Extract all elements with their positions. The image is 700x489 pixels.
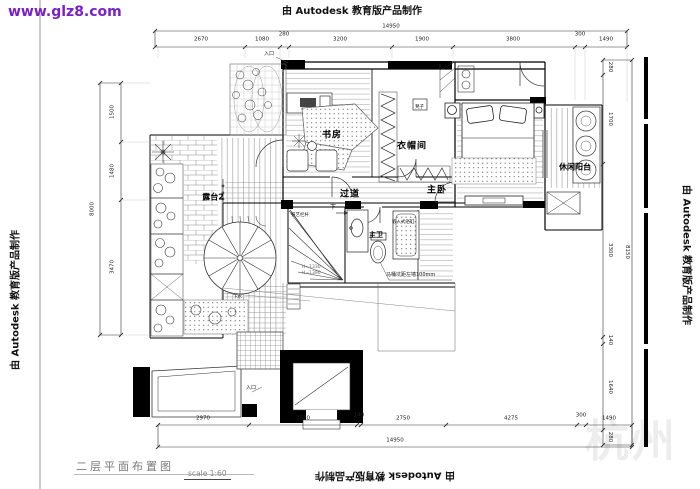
- annotation-drain: 下水: [233, 296, 242, 301]
- autodesk-watermark-left: 由 Autodesk 教育版产品制作: [7, 230, 22, 370]
- annotation-height-2: H=1390: [302, 272, 321, 277]
- dim-top-total: 14950: [382, 24, 400, 30]
- dim-top-seg: 3800: [506, 37, 520, 43]
- room-label-leisure-balcony: 休闲阳台: [559, 162, 591, 173]
- dim-top-seg: 3200: [333, 37, 347, 43]
- dim-right-seg: 3300: [606, 243, 612, 257]
- dim-bottom-seg: 140: [354, 413, 365, 419]
- dim-right-seg: 280: [606, 432, 612, 443]
- floor-plan-page: 杭州: [0, 0, 700, 489]
- dim-left-seg: 1500: [110, 105, 116, 119]
- bathroom-fixtures: [347, 210, 419, 263]
- dim-top-seg: 1080: [255, 37, 269, 43]
- drawing-title: 二层平面布置图: [76, 458, 174, 474]
- stairs: [287, 210, 348, 309]
- dim-top-seg: 1490: [599, 37, 613, 43]
- room-label-study: 书房: [322, 128, 342, 141]
- drawing-scale: scale 1:60: [184, 469, 231, 480]
- annotation-railing: 铁艺栏杆: [291, 214, 309, 219]
- dim-bottom-seg: 3510: [296, 416, 310, 422]
- dim-bottom-seg: 300: [576, 413, 587, 419]
- annotation-entrance-top: 入口: [264, 52, 274, 57]
- dim-bottom-total: 14950: [386, 438, 404, 444]
- dim-top-seg: 300: [575, 32, 586, 38]
- dim-right-seg: 280: [606, 62, 612, 73]
- room-label-corridor: 过道: [340, 187, 360, 200]
- dim-right-total: 8150: [623, 245, 629, 259]
- autodesk-watermark-top: 由 Autodesk 教育版产品制作: [282, 2, 422, 17]
- room-label-terrace2: 露台2: [202, 192, 224, 203]
- dim-right-seg: 1640: [606, 380, 612, 394]
- dim-right-seg: 140: [606, 335, 612, 346]
- annotation-bathtub: 嵌入式浴缸: [392, 221, 415, 226]
- floor-plan-drawing: [0, 0, 700, 489]
- annotation-stair-down: 下: [330, 205, 336, 211]
- autodesk-watermark-bottom: 由 Autodesk 教育版产品制作: [315, 470, 455, 485]
- dim-right-seg: 1700: [606, 112, 612, 126]
- dim-top-seg: 1900: [415, 37, 429, 43]
- dim-top-seg: 280: [279, 32, 290, 38]
- dim-bottom-seg: 2750: [396, 416, 410, 422]
- room-label-cloakroom: 衣帽间: [397, 139, 427, 152]
- topright-room: [458, 66, 474, 92]
- dim-bottom-seg: 4275: [504, 416, 518, 422]
- parasol-icon: [204, 222, 276, 294]
- autodesk-watermark-right: 由 Autodesk 教育版产品制作: [681, 185, 696, 325]
- annotation-toilet-note: 马桶坑距左墙100mm: [386, 273, 435, 278]
- dim-bottom-seg: 2970: [196, 416, 210, 422]
- dim-top-seg: 2670: [194, 37, 208, 43]
- room-label-master-bedroom: 主卧: [427, 183, 447, 196]
- dim-left-total: 8000: [90, 202, 96, 216]
- annotation-stool: 凳子: [415, 106, 424, 111]
- annotation-height-1: H=1330: [302, 266, 321, 271]
- site-watermark: www.glz8.com: [8, 4, 122, 20]
- room-label-master-bath: 主卫: [369, 230, 383, 240]
- dim-left-seg: 1480: [110, 164, 116, 178]
- dim-left-seg: 3470: [110, 260, 116, 274]
- annotation-entrance-bottom: 入口: [246, 386, 256, 391]
- dim-bottom-seg: 1490: [602, 416, 616, 422]
